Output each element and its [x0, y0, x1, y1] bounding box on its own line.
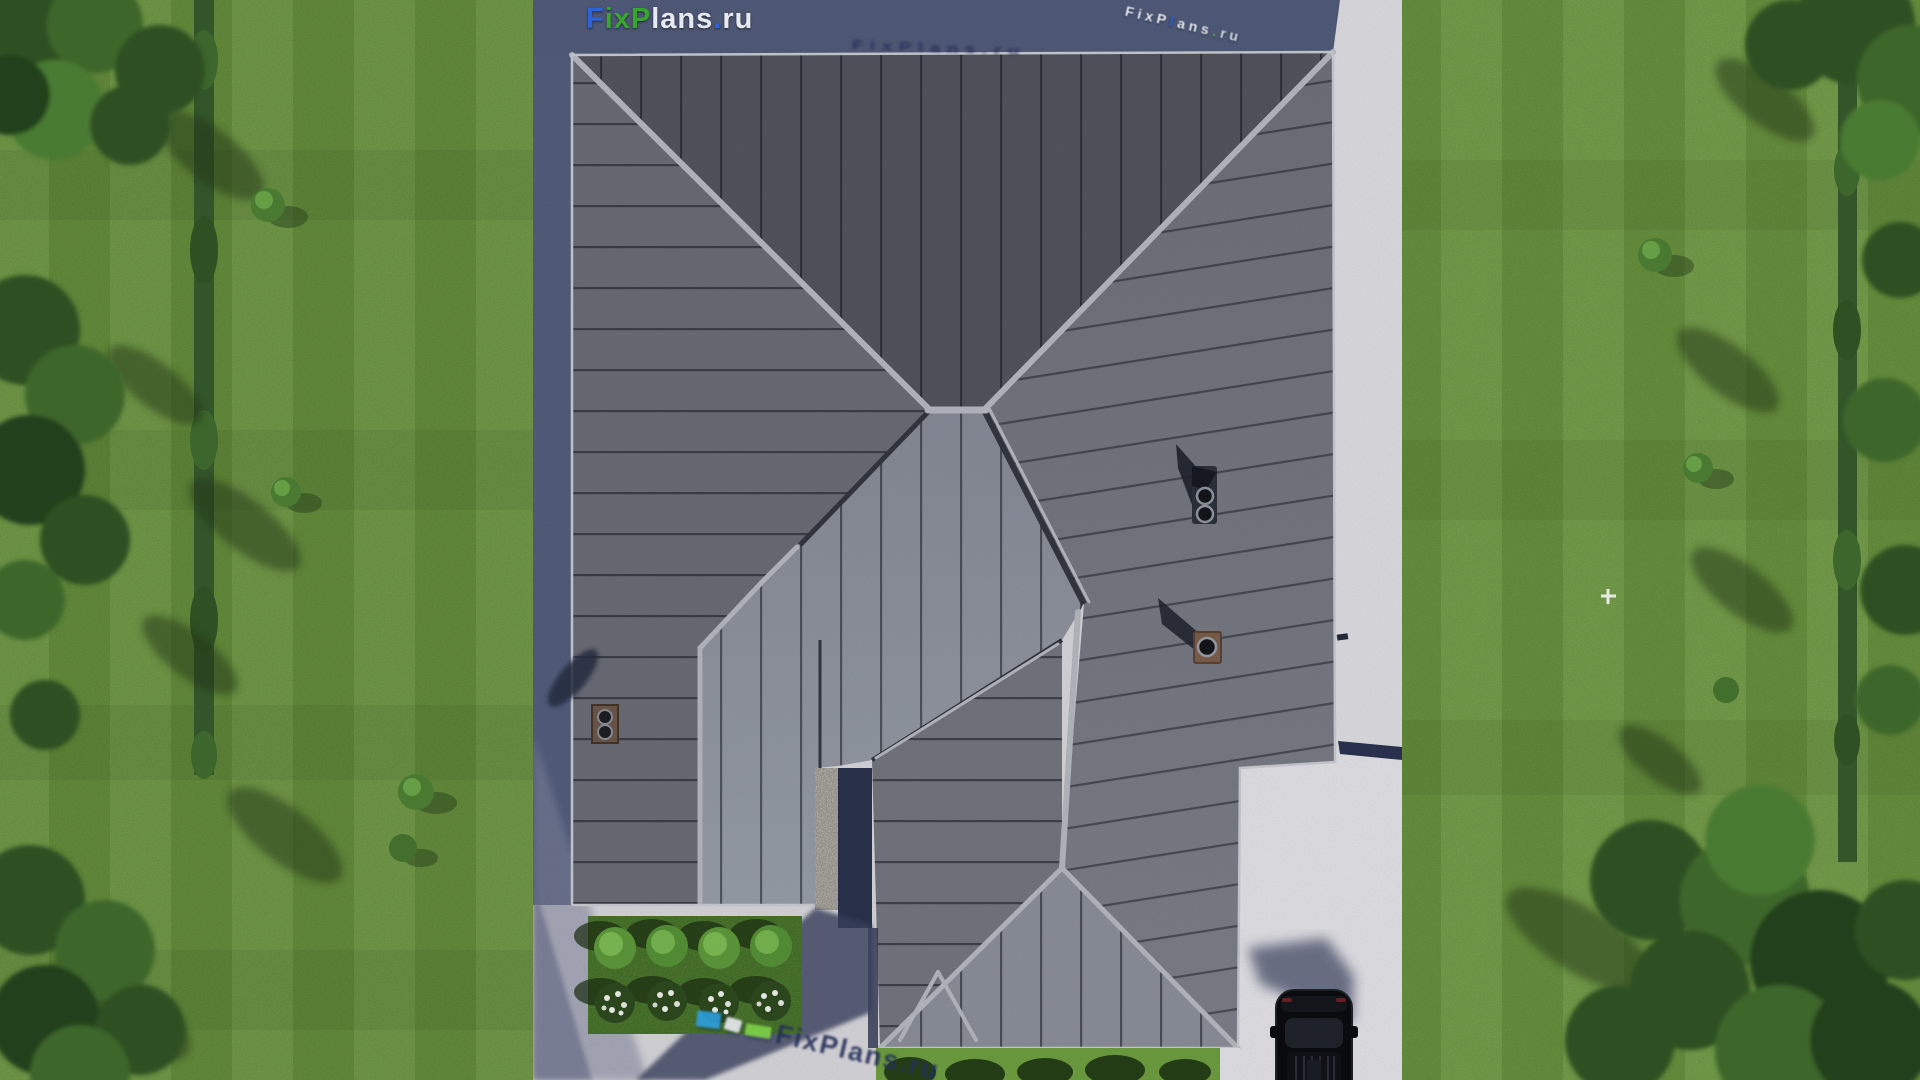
logo-seg: P [631, 3, 651, 35]
right-lawn [1402, 0, 1920, 1080]
left-lawn [0, 0, 533, 1080]
render-viewport: FixPlans.ru FixPlans.ru FixPlans.ru FixP… [0, 0, 1920, 1080]
watermark-chip-green [744, 1023, 772, 1039]
aerial-scene [0, 0, 1920, 1080]
logo-seg: lans [651, 3, 713, 35]
watermark-chip-white [723, 1017, 742, 1034]
logo-seg: ru [722, 3, 753, 35]
logo-seg: . [713, 3, 722, 35]
watermark-chip-blue [696, 1010, 722, 1029]
concrete-texture [533, 0, 1402, 1080]
logo-seg: F [586, 3, 605, 35]
logo-seg: ix [605, 3, 631, 35]
fixplans-logo: FixPlans.ru [586, 3, 753, 36]
